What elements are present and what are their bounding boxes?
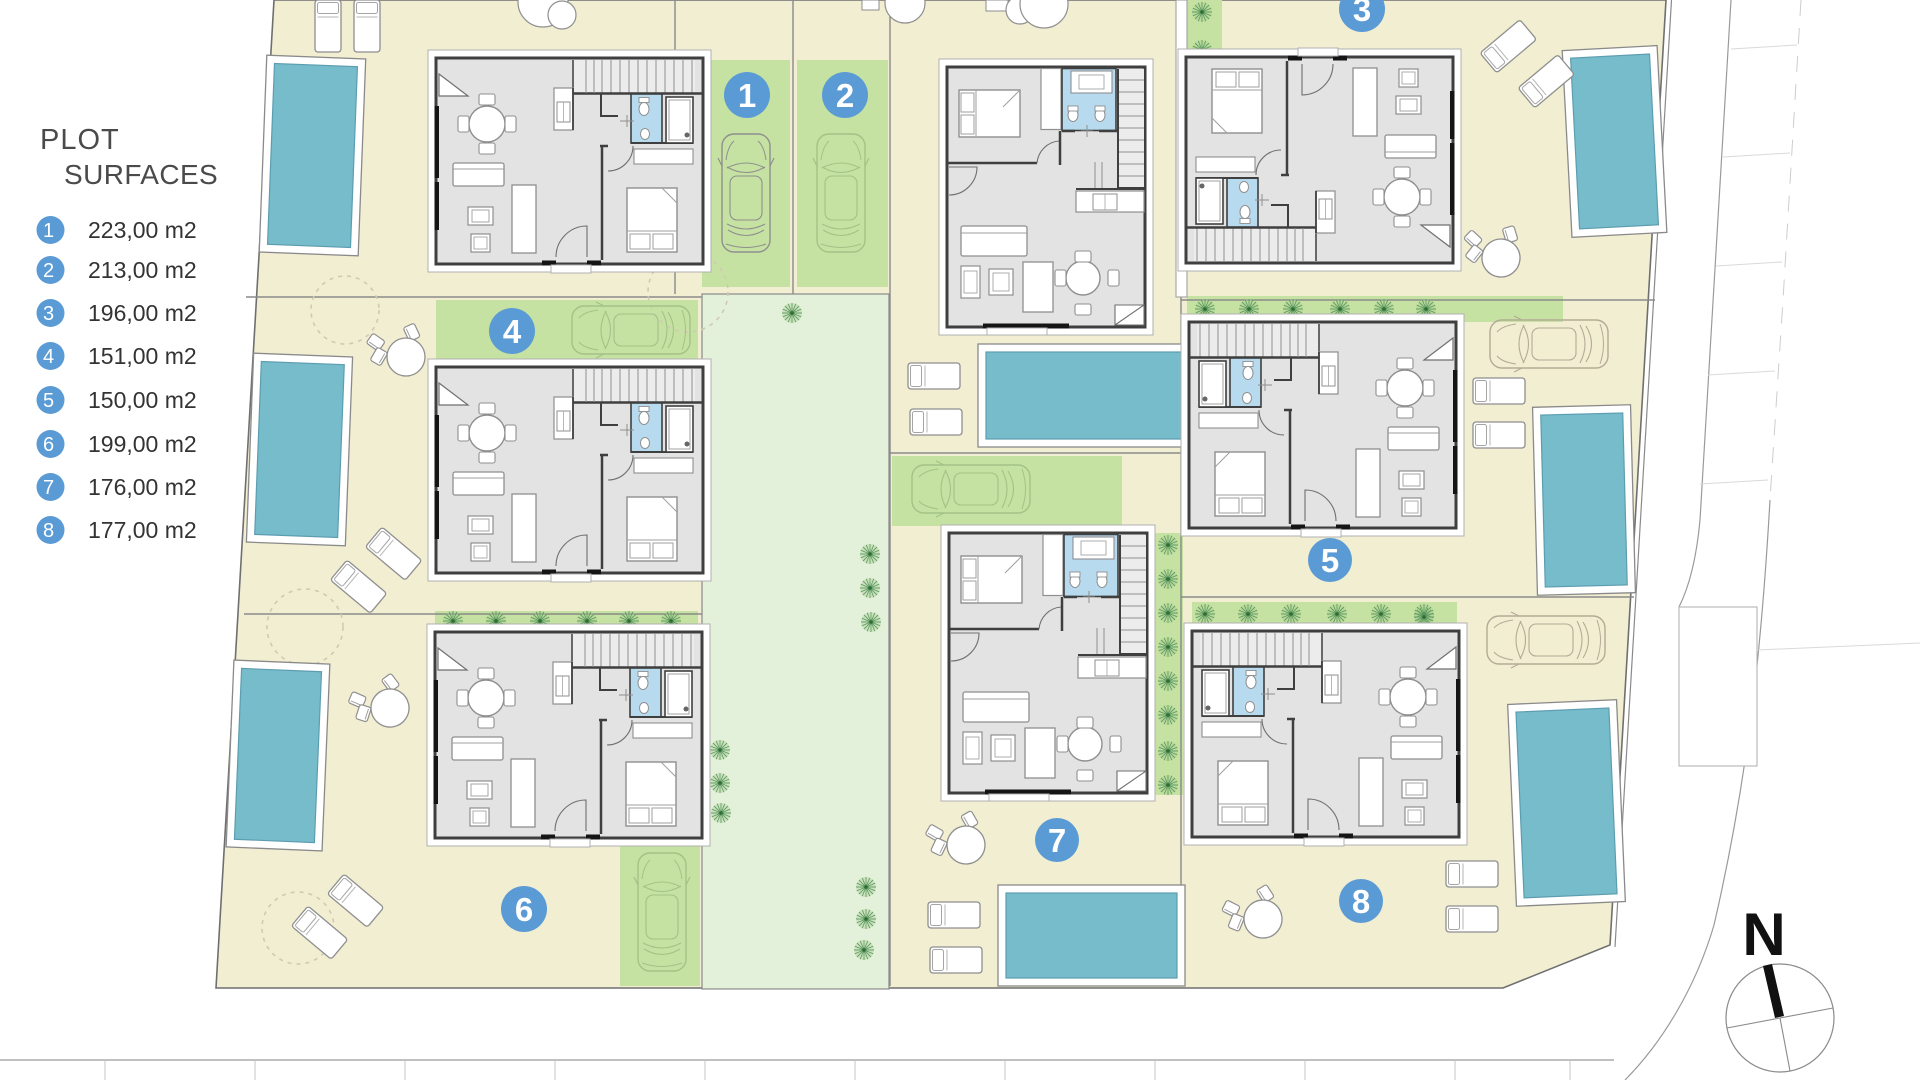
svg-text:2: 2	[836, 77, 854, 114]
svg-text:150,00 m2: 150,00 m2	[88, 387, 197, 413]
svg-text:N: N	[1742, 901, 1785, 968]
svg-text:199,00 m2: 199,00 m2	[88, 431, 197, 457]
svg-text:2: 2	[43, 260, 54, 282]
svg-text:213,00 m2: 213,00 m2	[88, 257, 197, 283]
svg-text:8: 8	[43, 520, 54, 542]
svg-text:1: 1	[43, 220, 54, 242]
svg-text:3: 3	[43, 303, 54, 325]
svg-text:176,00 m2: 176,00 m2	[88, 474, 197, 500]
svg-text:8: 8	[1352, 883, 1370, 920]
svg-text:4: 4	[43, 346, 54, 368]
svg-text:5: 5	[43, 390, 54, 412]
svg-text:223,00 m2: 223,00 m2	[88, 217, 197, 243]
svg-text:4: 4	[503, 313, 522, 350]
svg-text:SURFACES: SURFACES	[64, 159, 218, 190]
svg-text:6: 6	[43, 434, 54, 456]
svg-text:6: 6	[515, 891, 533, 928]
svg-text:PLOT: PLOT	[40, 124, 120, 156]
svg-text:196,00 m2: 196,00 m2	[88, 300, 197, 326]
svg-text:5: 5	[1321, 542, 1339, 579]
svg-text:7: 7	[43, 477, 54, 499]
svg-text:1: 1	[738, 77, 756, 114]
svg-text:177,00 m2: 177,00 m2	[88, 517, 197, 543]
svg-text:7: 7	[1048, 822, 1066, 859]
svg-text:3: 3	[1353, 0, 1371, 28]
svg-text:151,00 m2: 151,00 m2	[88, 343, 197, 369]
